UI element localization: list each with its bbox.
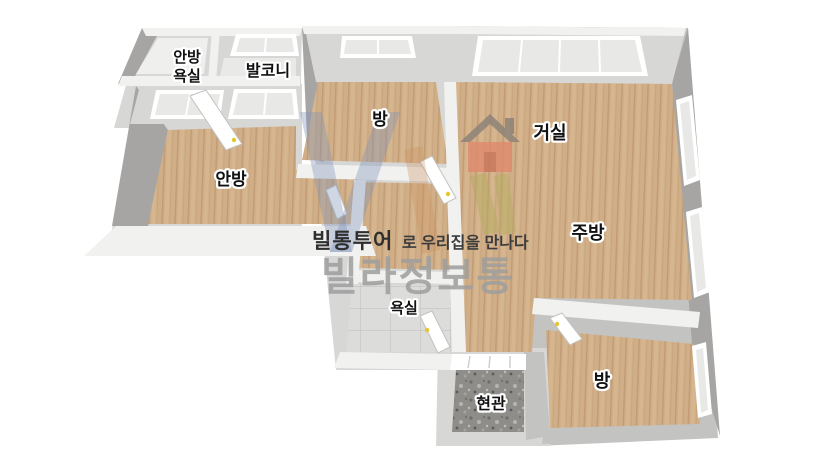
window-master-strip-right [228,89,299,119]
door-handle [446,192,450,196]
room-label-master-bedroom: 안방 [215,170,247,189]
watermark-tagline-rest: 로 우리집을 만나다 [402,233,529,252]
watermark-brand: 빌라정보통 [321,255,515,299]
window-room-top [340,36,416,58]
door-handle [425,328,429,332]
house-door [484,152,496,172]
window-living [472,36,648,76]
window-balcony [230,34,299,56]
house-chimney [505,118,514,134]
floorplan-svg: 빌통투어 로 우리집을 만나다 빌라정보통 안방 욕실 발코니 방 거실 안방 … [0,0,840,472]
wall-top-band-center [302,26,456,34]
room-label-living-room: 거실 [533,123,566,143]
watermark-text: 빌통투어 로 우리집을 만나다 빌라정보통 [312,230,529,299]
floor-room-bottom [546,330,700,428]
room-label-balcony: 발코니 [246,62,290,80]
entrance-cabinet [450,354,526,370]
room-label-kitchen: 주방 [571,223,605,243]
wall-bathroom-south [334,352,452,370]
floorplan-canvas: 빌통투어 로 우리집을 만나다 빌라정보통 안방 욕실 발코니 방 거실 안방 … [0,0,840,472]
watermark-tagline-brand: 빌통투어 [312,230,393,253]
room-label-master-bathroom-line1: 안방 [173,48,201,66]
shoe-cabinet [450,354,526,370]
room-label-room-top: 방 [372,110,388,129]
room-label-master-bathroom-line2: 욕실 [173,68,201,85]
door-handle [555,322,559,326]
room-label-bathroom: 욕실 [390,300,418,317]
door-handle [232,138,236,142]
room-label-entrance: 현관 [476,394,506,413]
room-label-room-bottom: 방 [594,371,611,391]
